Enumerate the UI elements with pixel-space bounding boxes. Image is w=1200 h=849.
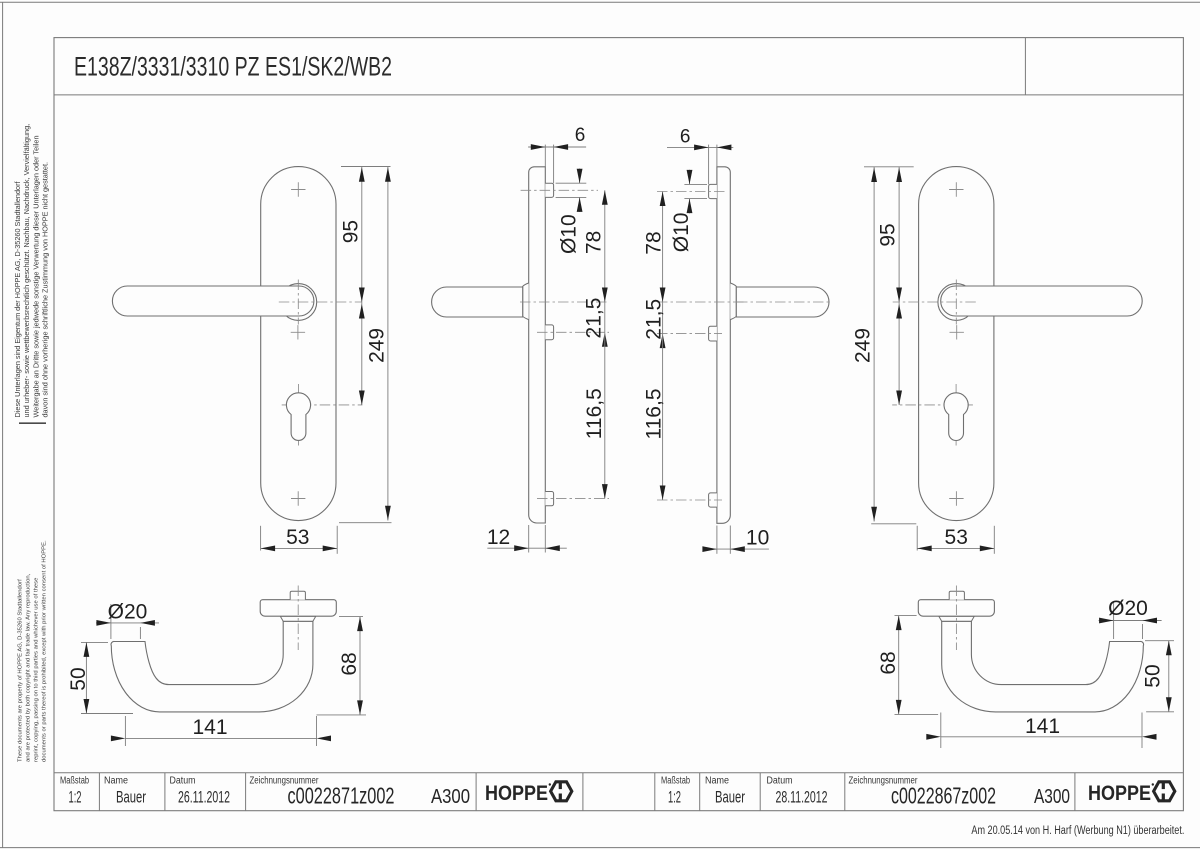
svg-text:21,5: 21,5 xyxy=(583,298,606,339)
svg-text:68: 68 xyxy=(877,651,900,674)
svg-text:A300: A300 xyxy=(1034,786,1070,808)
svg-text:Maßstab: Maßstab xyxy=(661,776,690,787)
svg-text:249: 249 xyxy=(852,328,875,363)
svg-text:c0022867z002: c0022867z002 xyxy=(891,783,996,809)
svg-text:These documents are property o: These documents are property of HOPPE AG… xyxy=(17,579,23,762)
svg-text:6: 6 xyxy=(575,125,586,146)
svg-text:Ø20: Ø20 xyxy=(108,601,148,624)
svg-text:and are protected by both copy: and are protected by both copyright and … xyxy=(25,573,31,762)
svg-text:Name: Name xyxy=(104,776,128,787)
svg-text:Datum: Datum xyxy=(767,776,793,787)
svg-text:reprint, copying, passing on t: reprint, copying, passing on to third pa… xyxy=(33,577,39,762)
svg-text:und urheber- sowie wettbewerbs: und urheber- sowie wettbewerbsrechtlich … xyxy=(22,124,31,418)
svg-text:Bauer: Bauer xyxy=(116,789,146,807)
svg-text:Diese Unterlagen sind Eigentum: Diese Unterlagen sind Eigentum der HOPPE… xyxy=(13,180,22,417)
svg-text:78: 78 xyxy=(643,231,666,254)
svg-text:documents or parts thereof is: documents or parts thereof is prohibited… xyxy=(41,540,47,762)
svg-text:141: 141 xyxy=(192,716,227,739)
svg-text:c0022871z002: c0022871z002 xyxy=(288,783,395,809)
svg-text:HOPPE: HOPPE xyxy=(1088,781,1151,805)
svg-text:Am 20.05.14 von H. Harf (Werbu: Am 20.05.14 von H. Harf (Werbung N1) übe… xyxy=(971,825,1184,837)
svg-text:53: 53 xyxy=(945,526,968,549)
svg-text:53: 53 xyxy=(286,526,309,549)
svg-text:249: 249 xyxy=(366,328,389,363)
svg-text:Datum: Datum xyxy=(170,776,196,787)
svg-text:28.11.2012: 28.11.2012 xyxy=(776,789,828,807)
svg-text:6: 6 xyxy=(680,126,691,147)
svg-text:95: 95 xyxy=(877,223,900,246)
svg-text:50: 50 xyxy=(67,667,90,690)
svg-text:Ø20: Ø20 xyxy=(1108,597,1148,620)
svg-text:95: 95 xyxy=(339,220,362,243)
svg-text:Bauer: Bauer xyxy=(715,789,745,807)
svg-text:116,5: 116,5 xyxy=(643,389,666,440)
svg-text:davon sind ohne vorherige schr: davon sind ohne vorherige schriftliche Z… xyxy=(41,162,50,418)
svg-text:50: 50 xyxy=(1142,664,1165,687)
svg-text:21,5: 21,5 xyxy=(643,299,666,340)
svg-text:68: 68 xyxy=(338,652,361,675)
svg-text:116,5: 116,5 xyxy=(583,388,606,439)
svg-text:10: 10 xyxy=(746,527,769,550)
svg-text:Ø10: Ø10 xyxy=(670,213,693,253)
svg-text:12: 12 xyxy=(487,526,510,549)
svg-text:HOPPE: HOPPE xyxy=(485,781,548,805)
svg-text:141: 141 xyxy=(1025,715,1060,738)
svg-text:Weitergabe an Dritte sowie jed: Weitergabe an Dritte sowie jedwede sonst… xyxy=(31,135,40,417)
svg-text:1:2: 1:2 xyxy=(668,789,681,807)
svg-text:26.11.2012: 26.11.2012 xyxy=(178,789,230,807)
svg-text:E138Z/3331/3310 PZ ES1/SK2/WB2: E138Z/3331/3310 PZ ES1/SK2/WB2 xyxy=(74,52,392,82)
svg-text:Ø10: Ø10 xyxy=(557,214,580,254)
svg-text:78: 78 xyxy=(583,231,606,254)
svg-text:1:2: 1:2 xyxy=(69,789,82,807)
svg-text:Maßstab: Maßstab xyxy=(60,776,89,787)
svg-text:A300: A300 xyxy=(431,786,470,808)
svg-text:Name: Name xyxy=(705,776,729,787)
